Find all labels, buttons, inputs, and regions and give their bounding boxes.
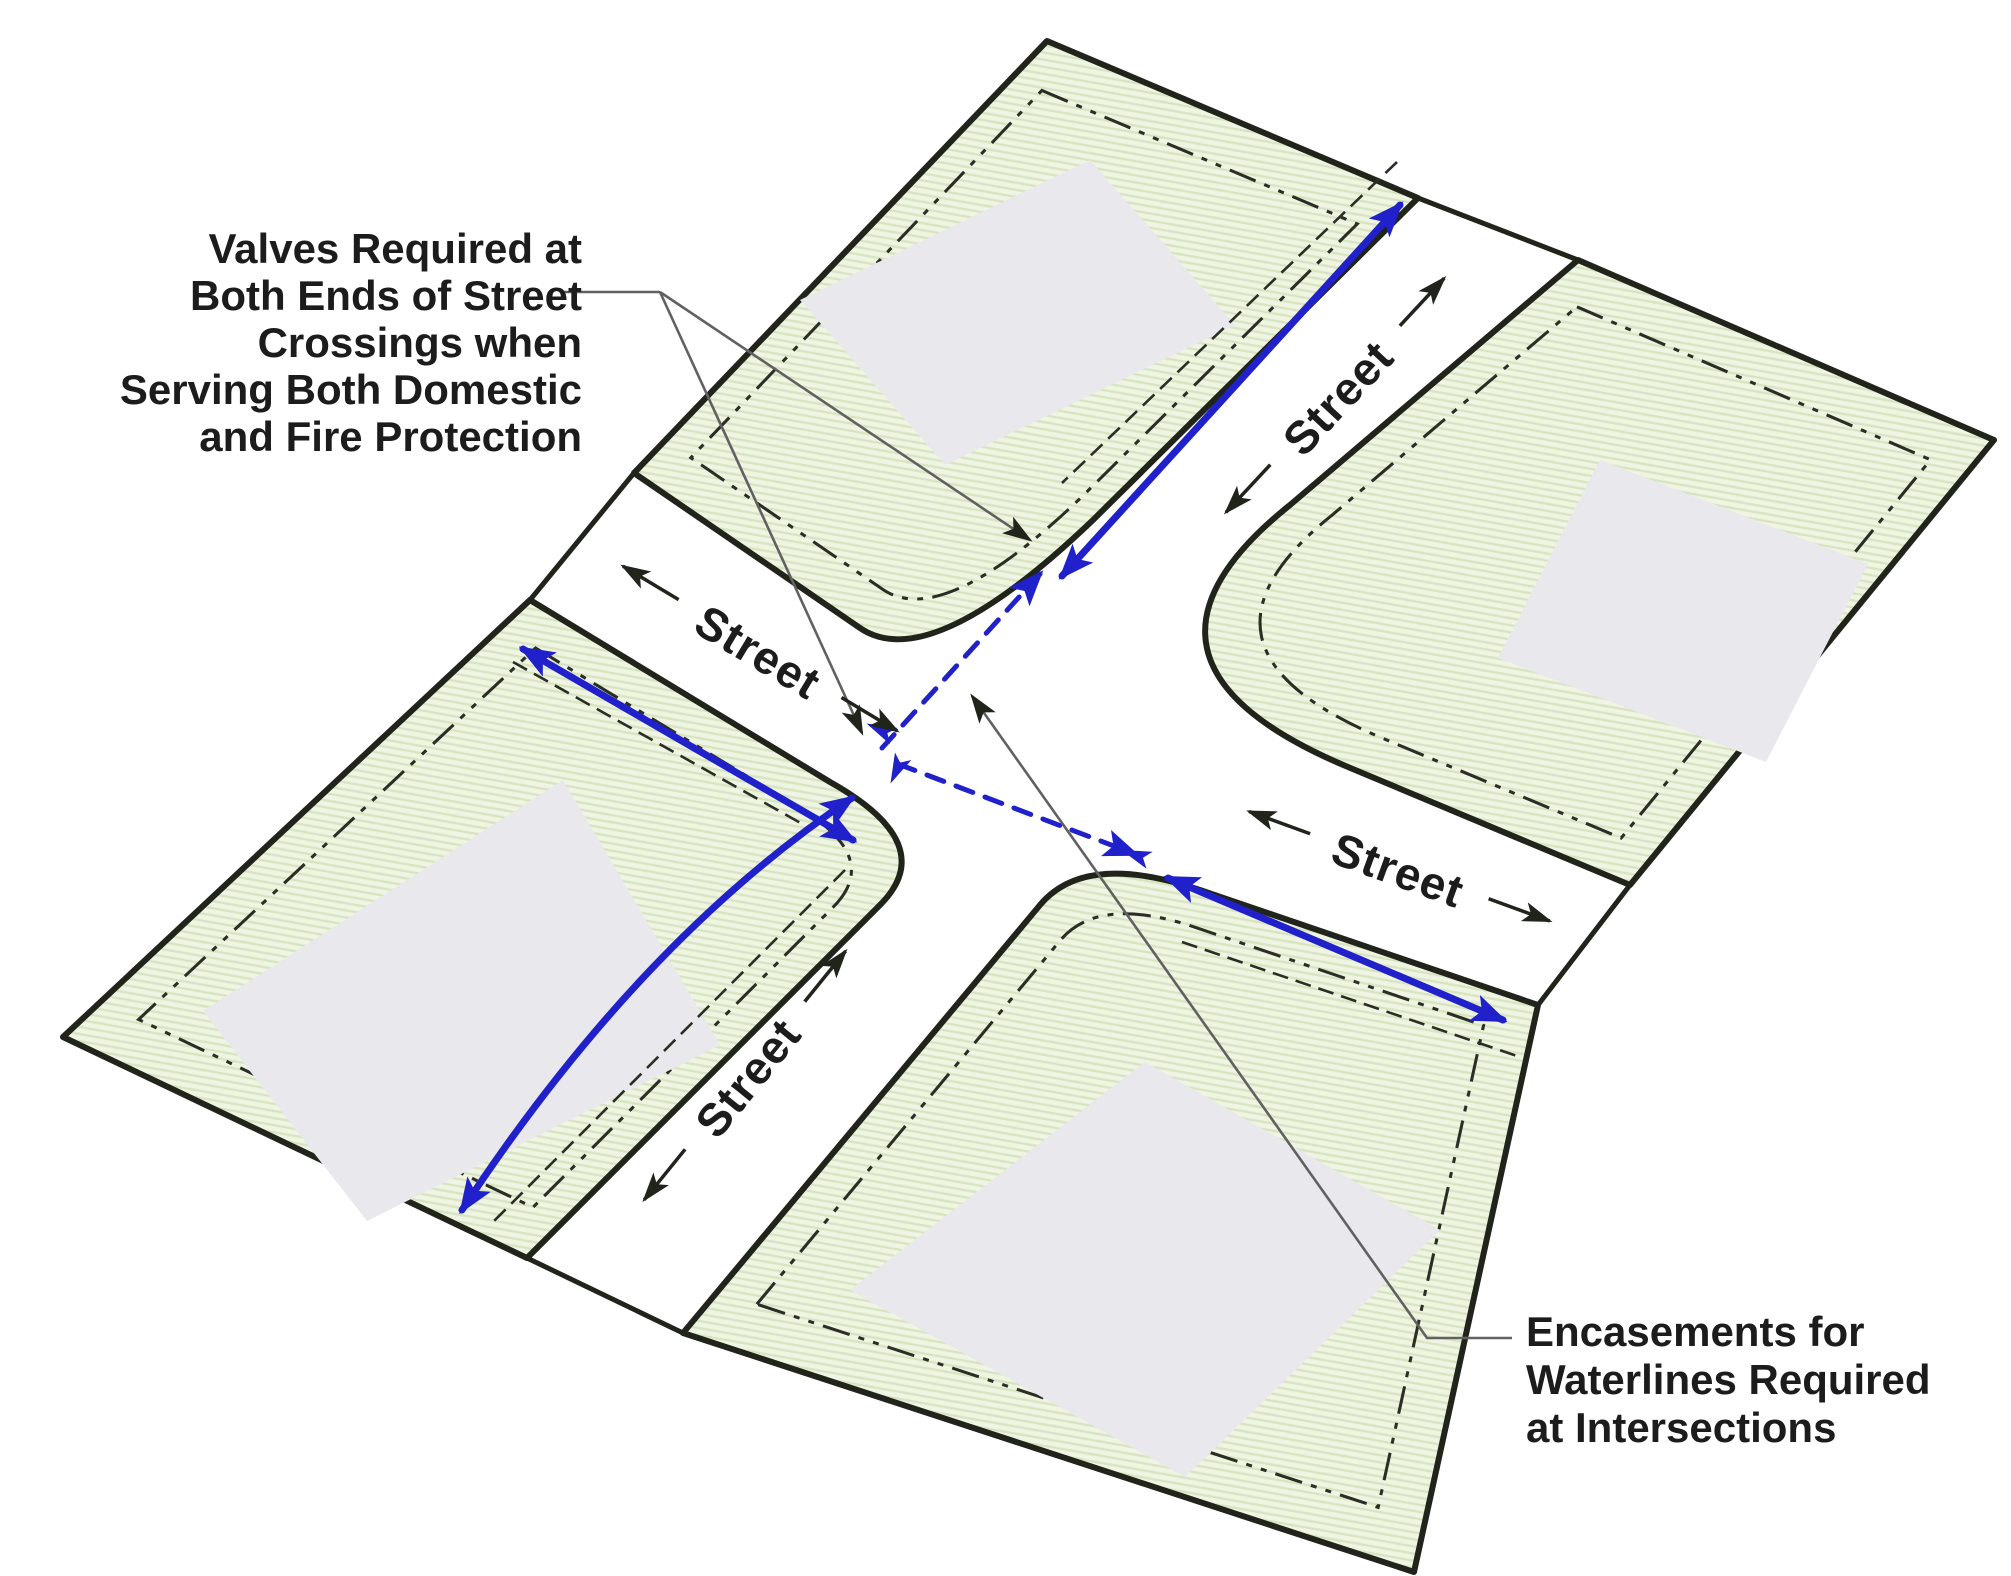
annotation-encasements-line-2: Waterlines Required <box>1526 1356 1931 1403</box>
annotation-valves-line-1: Valves Required at <box>208 225 582 272</box>
annotation-valves: Valves Required at Both Ends of Street C… <box>120 225 582 460</box>
annotation-valves-line-4: Serving Both Domestic <box>120 366 582 413</box>
site-plan-diagram: Street Street Street Street Valves Requi… <box>0 0 2011 1576</box>
annotation-valves-line-5: and Fire Protection <box>199 413 582 460</box>
annotation-encasements-line-1: Encasements for <box>1526 1308 1864 1355</box>
annotation-valves-line-2: Both Ends of Street <box>190 272 582 319</box>
annotation-valves-line-3: Crossings when <box>258 319 582 366</box>
annotation-encasements-line-3: at Intersections <box>1526 1404 1836 1451</box>
annotation-encasements: Encasements for Waterlines Required at I… <box>1526 1308 1931 1451</box>
diagram-page: Street Street Street Street Valves Requi… <box>0 0 2011 1576</box>
